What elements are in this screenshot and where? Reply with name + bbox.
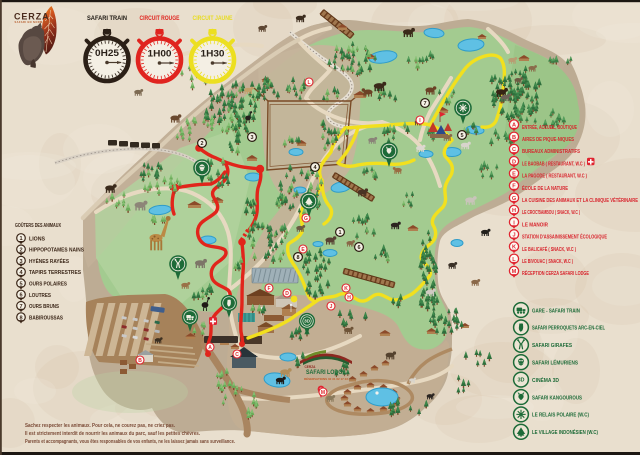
svg-text:CIRCUIT JAUNE: CIRCUIT JAUNE bbox=[193, 15, 234, 22]
svg-text:CERZA: CERZA bbox=[305, 365, 317, 369]
svg-text:M: M bbox=[512, 269, 517, 275]
svg-text:G: G bbox=[304, 216, 308, 222]
svg-text:1H30: 1H30 bbox=[201, 49, 225, 59]
svg-text:Il est strictement interdit de: Il est strictement interdit de nourrir l… bbox=[25, 431, 200, 437]
svg-text:6: 6 bbox=[357, 245, 360, 251]
svg-text:3D: 3D bbox=[517, 378, 524, 384]
svg-text:GARE - SAFARI TRAIN: GARE - SAFARI TRAIN bbox=[532, 308, 580, 314]
svg-text:LE BALICAFÉ ( SNACK, W.C ): LE BALICAFÉ ( SNACK, W.C ) bbox=[522, 245, 576, 253]
svg-text:LE VILLAGE INDONÉSIEN (W.C): LE VILLAGE INDONÉSIEN (W.C) bbox=[532, 428, 598, 436]
svg-text:LE MANOIR: LE MANOIR bbox=[522, 222, 548, 228]
svg-text:3D: 3D bbox=[304, 319, 311, 324]
svg-text:B: B bbox=[512, 135, 516, 141]
svg-text:SAFARI EN NORMANDIE: SAFARI EN NORMANDIE bbox=[15, 20, 53, 24]
svg-text:0H25: 0H25 bbox=[95, 48, 119, 58]
svg-text:H: H bbox=[347, 295, 351, 301]
svg-text:K: K bbox=[344, 286, 348, 292]
svg-text:7: 7 bbox=[423, 101, 426, 107]
svg-text:H: H bbox=[512, 208, 516, 214]
svg-text:BUREAUX ADMINISTRATIFS: BUREAUX ADMINISTRATIFS bbox=[522, 149, 580, 155]
svg-text:LIONS: LIONS bbox=[29, 236, 45, 242]
svg-text:6: 6 bbox=[19, 293, 22, 299]
svg-text:3: 3 bbox=[250, 135, 253, 141]
svg-text:7: 7 bbox=[19, 304, 22, 310]
svg-text:5: 5 bbox=[460, 133, 463, 139]
svg-text:2: 2 bbox=[200, 141, 203, 147]
svg-text:RÉCEPTION CERZA SAFARI LODGE: RÉCEPTION CERZA SAFARI LODGE bbox=[522, 269, 589, 277]
svg-text:1: 1 bbox=[19, 236, 22, 242]
svg-text:OURS BRUNS: OURS BRUNS bbox=[29, 304, 59, 310]
svg-text:G: G bbox=[512, 196, 516, 202]
svg-text:HIPPOPOTAMES NAINS: HIPPOPOTAMES NAINS bbox=[29, 248, 84, 254]
svg-text:J: J bbox=[512, 233, 515, 239]
svg-text:1H00: 1H00 bbox=[148, 49, 172, 59]
svg-text:GOÛTERS DES ANIMAUX: GOÛTERS DES ANIMAUX bbox=[15, 222, 61, 229]
svg-text:J: J bbox=[330, 304, 333, 310]
svg-text:3: 3 bbox=[19, 259, 22, 265]
svg-text:SAFARI GIRAFES: SAFARI GIRAFES bbox=[532, 343, 572, 349]
svg-text:SAFARI LODGE: SAFARI LODGE bbox=[306, 369, 346, 376]
svg-text:Sachez respecter les animaux.: Sachez respecter les animaux. Pour cela,… bbox=[25, 423, 175, 429]
svg-text:LE RELAIS POLAIRE (W.C): LE RELAIS POLAIRE (W.C) bbox=[532, 413, 589, 419]
svg-text:LE BIVOUAC ( SNACK, W.C ): LE BIVOUAC ( SNACK, W.C ) bbox=[522, 259, 573, 265]
svg-text:D: D bbox=[512, 159, 516, 165]
svg-text:ÉCOLE DE LA NATURE: ÉCOLE DE LA NATURE bbox=[522, 184, 568, 192]
svg-text:L: L bbox=[512, 257, 516, 263]
svg-text:HYÈNES RAYÉES: HYÈNES RAYÉES bbox=[29, 257, 69, 265]
svg-text:CIRCUIT ROUGE: CIRCUIT ROUGE bbox=[140, 15, 181, 22]
svg-text:BABIROUSSAS: BABIROUSSAS bbox=[29, 315, 63, 321]
svg-text:TAPIRS TERRESTRES: TAPIRS TERRESTRES bbox=[29, 270, 81, 276]
svg-text:K: K bbox=[512, 245, 516, 251]
svg-text:Parents et accompagnants, vous: Parents et accompagnants, vous êtes resp… bbox=[25, 439, 235, 445]
svg-text:1: 1 bbox=[338, 230, 341, 236]
svg-text:SAFARI LÉMURIENS: SAFARI LÉMURIENS bbox=[532, 359, 578, 367]
svg-text:CERZA: CERZA bbox=[14, 12, 50, 22]
svg-text:B: B bbox=[138, 358, 142, 364]
svg-text:CINÉMA 3D: CINÉMA 3D bbox=[532, 376, 559, 384]
svg-text:8: 8 bbox=[19, 315, 22, 321]
svg-text:A: A bbox=[208, 345, 212, 351]
svg-text:LE CROC'BAMBOU ( SNACK, W.C ): LE CROC'BAMBOU ( SNACK, W.C ) bbox=[522, 210, 580, 216]
svg-text:8: 8 bbox=[296, 255, 299, 261]
svg-text:SAFARI PERROQUETS ARC-EN-CIEL: SAFARI PERROQUETS ARC-EN-CIEL bbox=[532, 326, 605, 332]
svg-text:A: A bbox=[512, 123, 516, 129]
svg-text:F: F bbox=[512, 184, 516, 190]
svg-text:ENTRÉE, ACCUEIL, BOUTIQUE: ENTRÉE, ACCUEIL, BOUTIQUE bbox=[522, 123, 577, 131]
svg-text:LE BAOBAB ( RESTAURANT, W.C ): LE BAOBAB ( RESTAURANT, W.C ) bbox=[522, 161, 585, 167]
svg-text:E: E bbox=[512, 172, 516, 178]
svg-text:C: C bbox=[235, 352, 239, 358]
svg-text:STATION D'ASSAINISSEMENT ÉCOLO: STATION D'ASSAINISSEMENT ÉCOLOGIQUE bbox=[522, 233, 607, 241]
svg-text:LOUTRES: LOUTRES bbox=[29, 293, 51, 299]
svg-text:5: 5 bbox=[19, 281, 22, 287]
svg-text:AIRES DE PIQUE-NIQUES: AIRES DE PIQUE-NIQUES bbox=[522, 137, 574, 143]
svg-text:C: C bbox=[512, 147, 516, 153]
svg-text:OURS POLAIRES: OURS POLAIRES bbox=[29, 282, 67, 288]
svg-text:LA CUISINE DES ANIMAUX ET LA C: LA CUISINE DES ANIMAUX ET LA CLINIQUE VÉ… bbox=[522, 196, 638, 204]
svg-text:M: M bbox=[321, 390, 325, 396]
svg-text:2: 2 bbox=[19, 248, 22, 254]
svg-text:LA PAGODE ( RESTAURANT, W.C ): LA PAGODE ( RESTAURANT, W.C ) bbox=[522, 174, 587, 180]
svg-text:L: L bbox=[307, 80, 310, 86]
svg-text:SAFARI TRAIN: SAFARI TRAIN bbox=[87, 15, 127, 22]
svg-text:SAFARI KANGOUROUS: SAFARI KANGOUROUS bbox=[532, 395, 582, 401]
svg-text:F: F bbox=[267, 286, 270, 292]
svg-text:D: D bbox=[285, 291, 289, 297]
svg-text:RÉSERVATIONS 02 31 62 17 22: RÉSERVATIONS 02 31 62 17 22 bbox=[304, 376, 348, 381]
